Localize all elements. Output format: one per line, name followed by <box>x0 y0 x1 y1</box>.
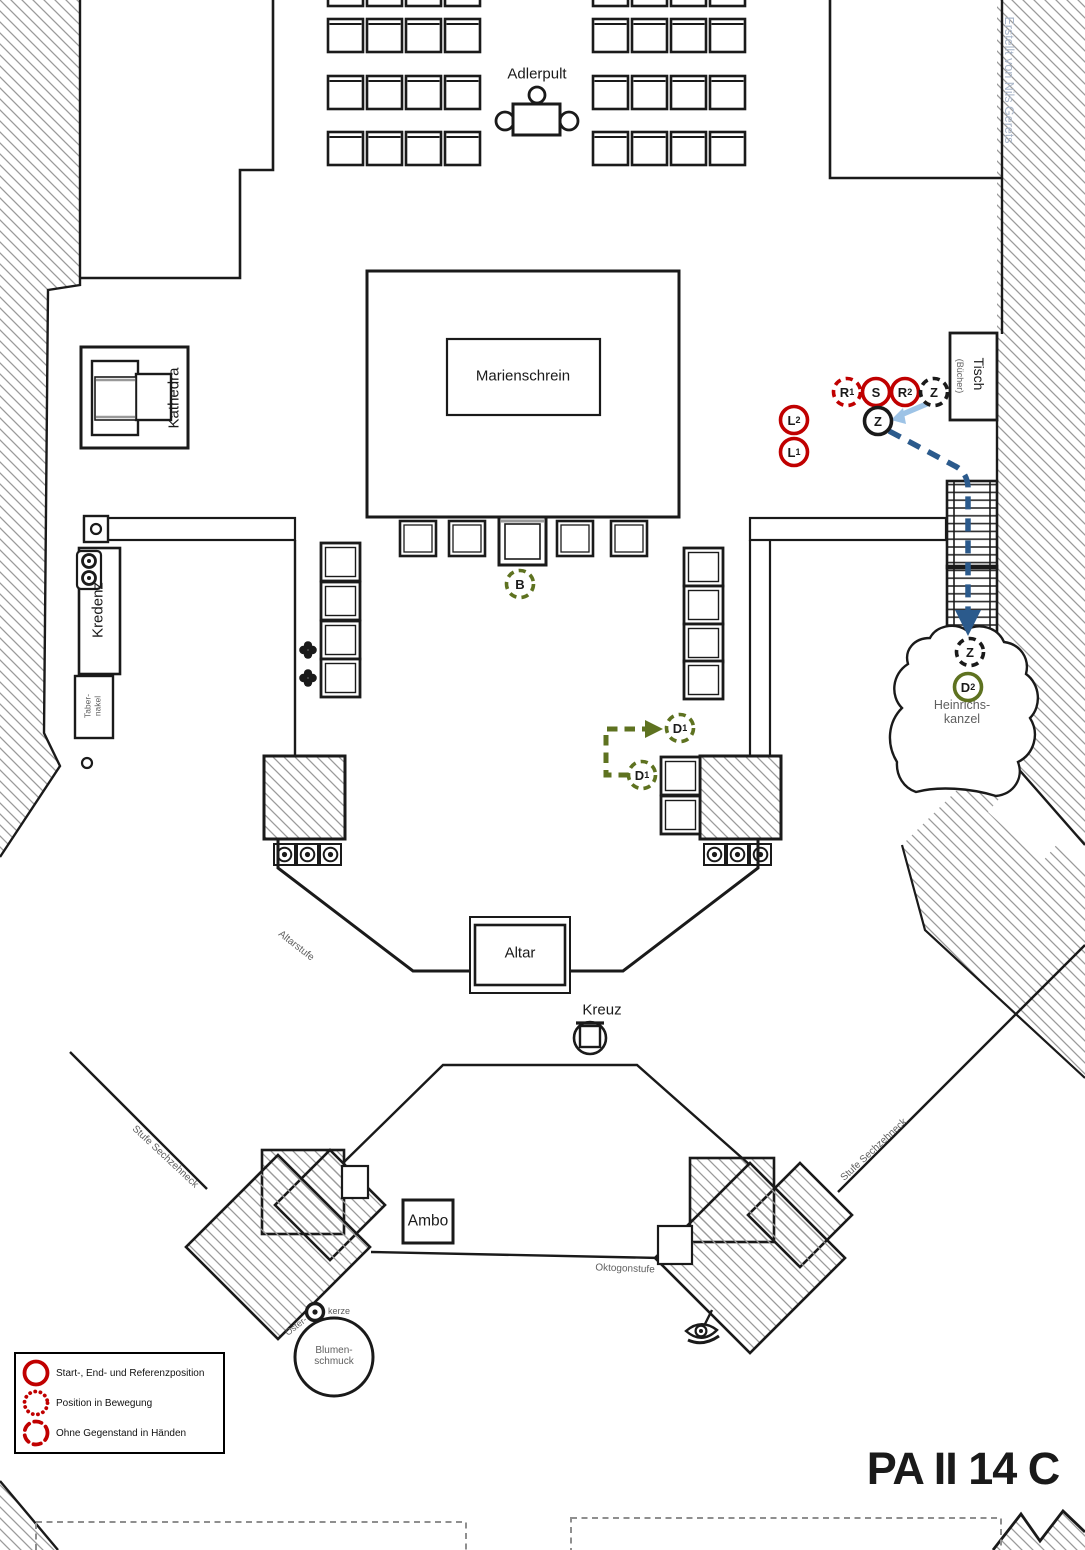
kathedra-label: Kathedra <box>167 368 184 429</box>
right-aisle-outline <box>830 0 1002 178</box>
kredenz-label: Kredenz <box>91 582 108 638</box>
adlerpult-label: Adlerpult <box>507 67 566 84</box>
floor-plan: Adlerpult Marienschrein Kathedra Tisch (… <box>0 0 1085 1550</box>
southwest-pillar <box>186 1150 385 1339</box>
credit-text: Erstellt von Nils Gerets <box>1002 16 1016 143</box>
tisch-label: Tisch <box>970 358 986 391</box>
legend-dashed-circle-icon <box>21 1418 51 1448</box>
oktogonstufe-label: Oktogonstufe <box>595 1262 655 1275</box>
legend-item-label: Position in Bewegung <box>56 1398 152 1409</box>
oktogonstufe-line <box>371 1252 660 1258</box>
z-handover-arrow-lightblue <box>891 403 929 424</box>
d1-route-green <box>606 720 663 775</box>
legend-item-solid: Start-, End- und Referenzposition <box>21 1358 221 1388</box>
floor-plan-drawing <box>0 0 1085 1550</box>
ambo-label: Ambo <box>408 1212 449 1229</box>
flower-icon <box>299 669 317 687</box>
altar-label: Altar <box>505 946 536 963</box>
adlerpult-icon <box>496 87 578 135</box>
marienschrein-podium <box>367 271 679 517</box>
marienschrein-label: Marienschrein <box>476 369 570 386</box>
legend-rows: Start-, End- und ReferenzpositionPositio… <box>21 1358 221 1448</box>
kreuz-icon <box>574 1022 606 1054</box>
osterkerze-icon <box>307 1304 324 1321</box>
legend: Start-, End- und ReferenzpositionPositio… <box>14 1352 225 1454</box>
chancel-piers <box>264 756 781 865</box>
podium-front-squares <box>400 517 647 565</box>
bottom-dashed-areas <box>36 1518 1001 1550</box>
southeast-wall-band <box>902 772 1085 1078</box>
plan-title: PA II 14 C <box>867 1443 1060 1495</box>
legend-dotted-circle-icon <box>21 1388 51 1418</box>
tisch-sub-label: (Bücher) <box>955 359 965 394</box>
legend-item-dashed: Ohne Gegenstand in Händen <box>21 1418 221 1448</box>
tabernakel-label: Taber- nakel <box>83 694 102 718</box>
legend-solid-circle-icon <box>21 1358 51 1388</box>
legend-item-label: Ohne Gegenstand in Händen <box>56 1428 186 1439</box>
heinrichskanzel-label: Heinrichs- kanzel <box>934 698 990 726</box>
legend-item-label: Start-, End- und Referenzposition <box>56 1368 204 1379</box>
inner-step-outline <box>343 1065 750 1165</box>
kreuz-label: Kreuz <box>582 1003 621 1020</box>
blumenschmuck-label: Blumen- schmuck <box>314 1345 353 1367</box>
southeast-pillar <box>655 1158 852 1353</box>
osterkerze-label-2: kerze <box>328 1306 350 1316</box>
left-aisle-outline <box>80 0 273 278</box>
legend-item-dotted: Position in Bewegung <box>21 1388 221 1418</box>
flower-icon <box>299 641 317 659</box>
